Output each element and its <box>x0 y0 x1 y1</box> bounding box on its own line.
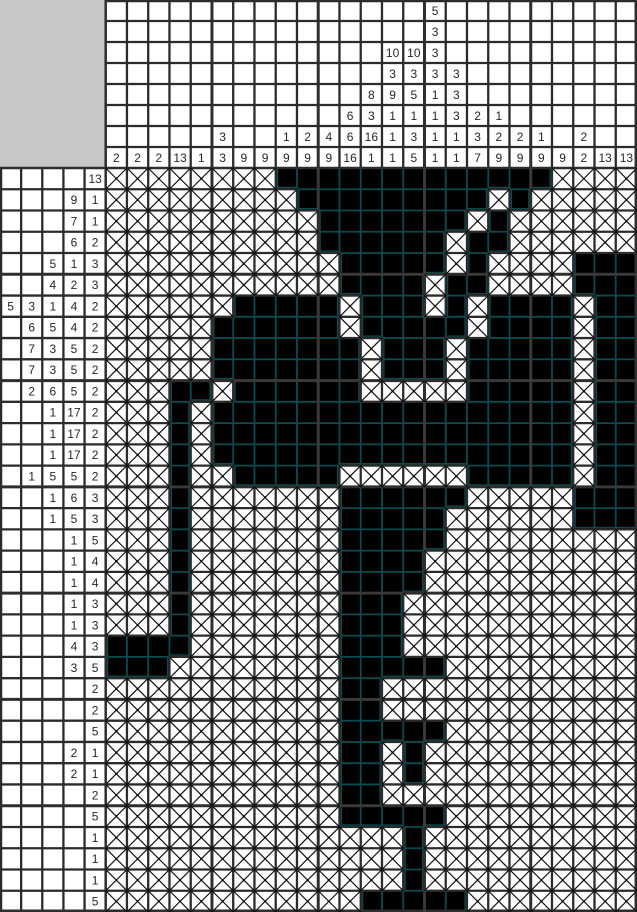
svg-text:4: 4 <box>326 130 333 144</box>
svg-text:13: 13 <box>88 172 102 186</box>
svg-text:3: 3 <box>92 278 99 292</box>
svg-text:2: 2 <box>92 703 99 717</box>
svg-text:5: 5 <box>411 151 418 165</box>
svg-text:5: 5 <box>50 257 57 271</box>
svg-text:1: 1 <box>71 597 78 611</box>
svg-text:2: 2 <box>92 342 99 356</box>
svg-text:2: 2 <box>474 109 481 123</box>
svg-text:3: 3 <box>50 342 57 356</box>
svg-text:10: 10 <box>386 46 400 60</box>
svg-text:1: 1 <box>50 427 57 441</box>
svg-text:1: 1 <box>50 406 57 420</box>
svg-text:3: 3 <box>432 25 439 39</box>
svg-text:3: 3 <box>453 109 460 123</box>
svg-text:2: 2 <box>92 236 99 250</box>
svg-text:4: 4 <box>71 321 78 335</box>
svg-text:7: 7 <box>474 151 481 165</box>
svg-text:3: 3 <box>432 46 439 60</box>
svg-text:3: 3 <box>474 130 481 144</box>
svg-text:7: 7 <box>71 214 78 228</box>
svg-text:1: 1 <box>538 130 545 144</box>
svg-text:16: 16 <box>365 130 379 144</box>
svg-text:1: 1 <box>92 746 99 760</box>
svg-text:1: 1 <box>389 151 396 165</box>
svg-text:17: 17 <box>67 448 81 462</box>
svg-text:9: 9 <box>389 88 396 102</box>
svg-text:2: 2 <box>134 151 141 165</box>
svg-text:3: 3 <box>92 512 99 526</box>
svg-text:2: 2 <box>92 427 99 441</box>
svg-text:9: 9 <box>517 151 524 165</box>
svg-text:1: 1 <box>92 873 99 887</box>
svg-text:13: 13 <box>620 151 634 165</box>
svg-text:3: 3 <box>411 67 418 81</box>
svg-text:5: 5 <box>71 469 78 483</box>
svg-text:1: 1 <box>71 533 78 547</box>
svg-text:6: 6 <box>347 130 354 144</box>
svg-text:3: 3 <box>411 130 418 144</box>
svg-text:2: 2 <box>92 788 99 802</box>
svg-text:1: 1 <box>92 852 99 866</box>
svg-text:9: 9 <box>71 193 78 207</box>
svg-text:4: 4 <box>92 576 99 590</box>
svg-text:3: 3 <box>389 67 396 81</box>
svg-text:2: 2 <box>71 767 78 781</box>
svg-text:2: 2 <box>92 299 99 313</box>
svg-text:1: 1 <box>50 512 57 526</box>
svg-text:1: 1 <box>432 130 439 144</box>
svg-text:2: 2 <box>71 278 78 292</box>
svg-text:1: 1 <box>368 151 375 165</box>
svg-text:3: 3 <box>92 640 99 654</box>
svg-text:2: 2 <box>92 469 99 483</box>
svg-text:5: 5 <box>71 512 78 526</box>
svg-text:5: 5 <box>92 895 99 909</box>
svg-text:5: 5 <box>50 321 57 335</box>
svg-text:7: 7 <box>28 363 35 377</box>
svg-text:3: 3 <box>28 299 35 313</box>
svg-text:9: 9 <box>326 151 333 165</box>
svg-text:3: 3 <box>92 257 99 271</box>
svg-text:1: 1 <box>28 469 35 483</box>
svg-text:5: 5 <box>92 810 99 824</box>
svg-text:2: 2 <box>92 448 99 462</box>
svg-text:1: 1 <box>389 130 396 144</box>
svg-text:1: 1 <box>389 109 396 123</box>
svg-text:3: 3 <box>453 67 460 81</box>
svg-text:2: 2 <box>28 384 35 398</box>
svg-text:1: 1 <box>92 831 99 845</box>
svg-text:8: 8 <box>368 88 375 102</box>
svg-text:2: 2 <box>92 682 99 696</box>
svg-text:1: 1 <box>92 214 99 228</box>
svg-text:9: 9 <box>240 151 247 165</box>
svg-text:1: 1 <box>283 130 290 144</box>
svg-text:2: 2 <box>92 406 99 420</box>
svg-text:1: 1 <box>453 151 460 165</box>
svg-text:5: 5 <box>411 88 418 102</box>
svg-text:4: 4 <box>92 555 99 569</box>
svg-text:9: 9 <box>304 151 311 165</box>
svg-text:16: 16 <box>343 151 357 165</box>
svg-text:2: 2 <box>304 130 311 144</box>
svg-text:4: 4 <box>71 299 78 313</box>
svg-text:3: 3 <box>219 151 226 165</box>
svg-text:1: 1 <box>71 576 78 590</box>
svg-text:4: 4 <box>71 640 78 654</box>
svg-text:1: 1 <box>50 491 57 505</box>
svg-text:5: 5 <box>92 533 99 547</box>
svg-text:5: 5 <box>92 661 99 675</box>
svg-text:1: 1 <box>496 109 503 123</box>
svg-text:1: 1 <box>92 193 99 207</box>
svg-text:1: 1 <box>50 448 57 462</box>
svg-text:5: 5 <box>7 299 14 313</box>
svg-text:1: 1 <box>50 299 57 313</box>
svg-text:9: 9 <box>559 151 566 165</box>
svg-text:6: 6 <box>71 491 78 505</box>
svg-text:17: 17 <box>67 406 81 420</box>
svg-text:3: 3 <box>92 618 99 632</box>
svg-text:13: 13 <box>173 151 187 165</box>
svg-text:2: 2 <box>71 746 78 760</box>
svg-text:6: 6 <box>71 236 78 250</box>
svg-text:3: 3 <box>50 363 57 377</box>
svg-text:17: 17 <box>67 427 81 441</box>
svg-text:2: 2 <box>92 321 99 335</box>
svg-text:2: 2 <box>517 130 524 144</box>
svg-text:3: 3 <box>368 109 375 123</box>
svg-text:3: 3 <box>453 88 460 102</box>
svg-text:1: 1 <box>432 88 439 102</box>
svg-text:1: 1 <box>92 767 99 781</box>
svg-text:5: 5 <box>432 4 439 18</box>
svg-text:4: 4 <box>50 278 57 292</box>
svg-text:5: 5 <box>92 725 99 739</box>
svg-text:2: 2 <box>581 151 588 165</box>
svg-text:1: 1 <box>411 109 418 123</box>
svg-text:2: 2 <box>113 151 120 165</box>
svg-text:1: 1 <box>432 109 439 123</box>
svg-text:1: 1 <box>71 618 78 632</box>
svg-text:6: 6 <box>28 321 35 335</box>
svg-text:1: 1 <box>453 130 460 144</box>
svg-text:6: 6 <box>347 109 354 123</box>
svg-text:2: 2 <box>155 151 162 165</box>
svg-text:5: 5 <box>71 363 78 377</box>
svg-text:2: 2 <box>92 363 99 377</box>
svg-text:3: 3 <box>71 661 78 675</box>
svg-text:1: 1 <box>432 151 439 165</box>
svg-text:5: 5 <box>50 469 57 483</box>
svg-text:3: 3 <box>92 597 99 611</box>
svg-text:9: 9 <box>262 151 269 165</box>
svg-text:3: 3 <box>432 67 439 81</box>
svg-text:6: 6 <box>50 384 57 398</box>
svg-text:1: 1 <box>198 151 205 165</box>
svg-text:3: 3 <box>219 130 226 144</box>
svg-text:9: 9 <box>283 151 290 165</box>
svg-text:7: 7 <box>28 342 35 356</box>
svg-text:9: 9 <box>496 151 503 165</box>
svg-text:5: 5 <box>71 342 78 356</box>
svg-text:1: 1 <box>71 257 78 271</box>
svg-text:13: 13 <box>598 151 612 165</box>
svg-text:2: 2 <box>581 130 588 144</box>
svg-text:3: 3 <box>92 491 99 505</box>
svg-text:5: 5 <box>71 384 78 398</box>
svg-text:1: 1 <box>71 555 78 569</box>
svg-text:10: 10 <box>407 46 421 60</box>
svg-text:9: 9 <box>538 151 545 165</box>
svg-text:2: 2 <box>496 130 503 144</box>
svg-text:2: 2 <box>92 384 99 398</box>
